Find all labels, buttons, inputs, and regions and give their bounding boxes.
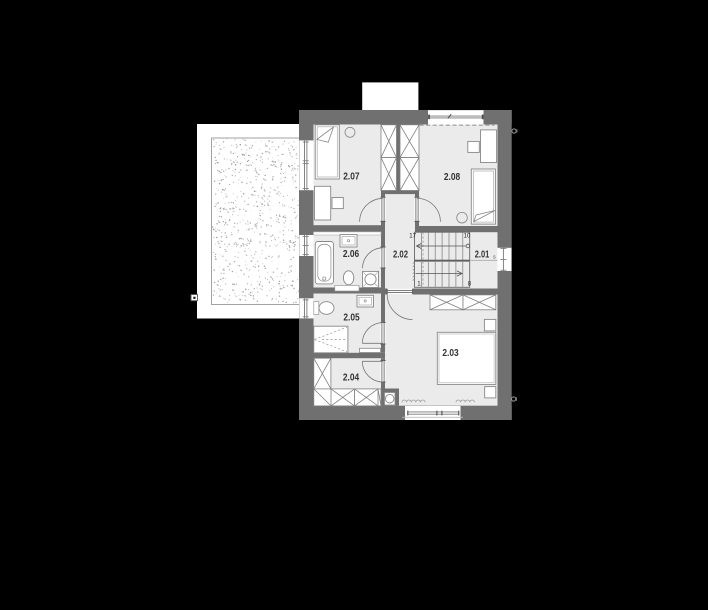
svg-text:2.03: 2.03 bbox=[442, 348, 459, 359]
svg-text:s: s bbox=[493, 255, 496, 261]
svg-text:17: 17 bbox=[409, 234, 416, 240]
svg-text:2.01: 2.01 bbox=[475, 249, 490, 260]
svg-text:2.04: 2.04 bbox=[343, 372, 360, 383]
svg-text:2.02: 2.02 bbox=[393, 249, 408, 260]
svg-text:2.05: 2.05 bbox=[343, 312, 360, 323]
svg-text:10: 10 bbox=[464, 234, 471, 240]
svg-text:2.07: 2.07 bbox=[343, 171, 360, 182]
svg-text:2.06: 2.06 bbox=[343, 249, 360, 260]
svg-text:2.08: 2.08 bbox=[444, 172, 461, 183]
